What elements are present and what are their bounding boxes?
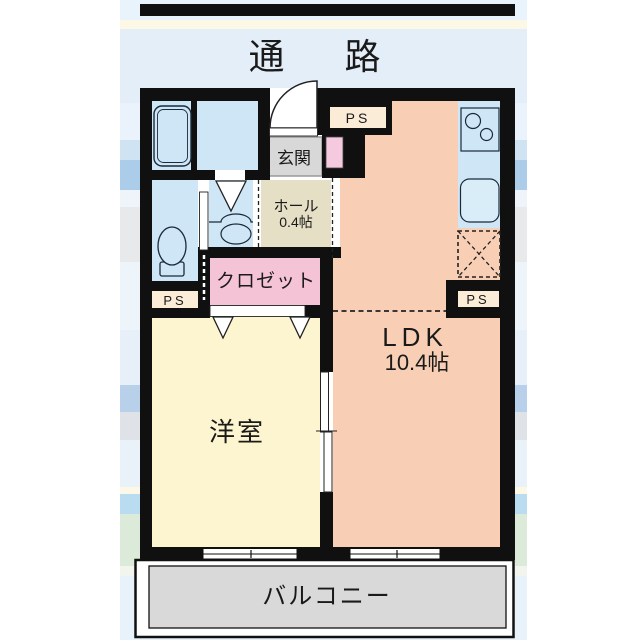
corridor-bar [140, 4, 515, 16]
balcony-label: バルコニー [262, 583, 392, 610]
toilet-icon [158, 227, 186, 265]
entrance-threshold [270, 128, 318, 136]
western-room-label: 洋室 [209, 417, 265, 447]
ldk-label: LDK [382, 322, 448, 352]
hall-label: ホール [273, 198, 318, 215]
hall-size: 0.4帖 [279, 214, 312, 230]
corridor-label: 通 路 [248, 36, 405, 77]
closet-label: クロゼット [216, 270, 316, 292]
shoe-cabinet [326, 137, 343, 168]
room-divider-sliding-door-pane1 [321, 372, 329, 432]
floor-plan: バルコニー 玄関 ホール 0.4帖 クロゼット 洋室 LDK 10.4帖 PS … [136, 81, 516, 637]
pipe-space-top-label: PS [346, 110, 371, 126]
kitchen-sink-icon [461, 179, 500, 222]
room-divider-sliding-door-pane2 [324, 432, 332, 492]
balcony: バルコニー [136, 560, 514, 637]
floorplan-canvas: 通 路 [0, 0, 640, 640]
pipe-space-right-label: PS [466, 292, 489, 307]
ldk-size: 10.4帖 [385, 350, 450, 375]
bathroom-area [152, 100, 258, 170]
bathroom-door-opening [215, 170, 245, 180]
pipe-space-left-label: PS [163, 293, 186, 308]
toilet-sliding-door [200, 192, 209, 250]
entrance-label: 玄関 [277, 149, 311, 168]
closet-opening [210, 306, 305, 317]
